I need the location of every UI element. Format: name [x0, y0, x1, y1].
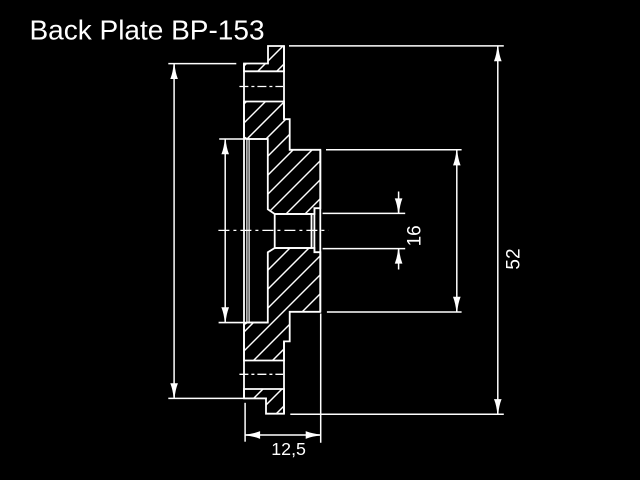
- svg-text:52: 52: [504, 248, 525, 269]
- svg-text:16: 16: [405, 225, 426, 246]
- svg-text:12,5: 12,5: [271, 439, 306, 459]
- svg-text:Back Plate BP-153: Back Plate BP-153: [30, 15, 265, 46]
